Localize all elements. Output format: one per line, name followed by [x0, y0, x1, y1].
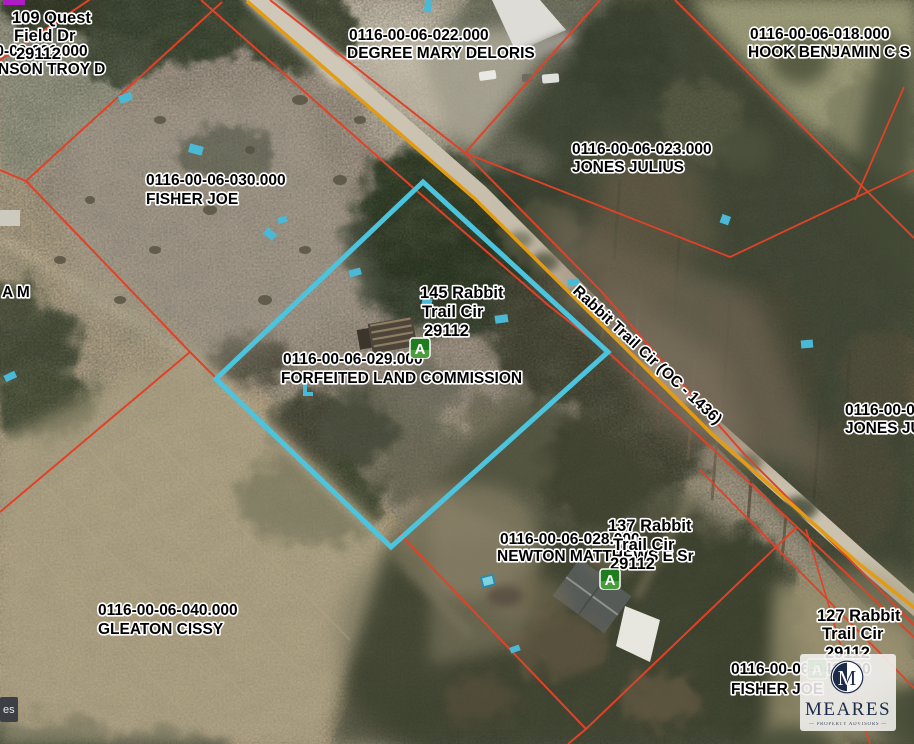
- svg-text:MEARES: MEARES: [805, 699, 891, 720]
- svg-text:A: A: [415, 341, 426, 358]
- svg-text:0116-00-06-018.000: 0116-00-06-018.000: [750, 26, 890, 43]
- svg-text:127 Rabbit: 127 Rabbit: [817, 607, 901, 625]
- svg-text:FISHER JOE: FISHER JOE: [146, 191, 238, 208]
- svg-text:137 Rabbit: 137 Rabbit: [608, 517, 692, 535]
- svg-text:Trail Cir: Trail Cir: [822, 625, 884, 643]
- svg-text:29112: 29112: [16, 45, 61, 63]
- svg-text:145 Rabbit: 145 Rabbit: [420, 284, 504, 302]
- svg-text:JONES JULIUS: JONES JULIUS: [572, 159, 684, 176]
- svg-text:HOOK BENJAMIN C S: HOOK BENJAMIN C S: [748, 44, 910, 61]
- svg-text:0116-00-06-024.000: 0116-00-06-024.000: [845, 402, 914, 419]
- svg-text:29112: 29112: [424, 322, 469, 340]
- svg-text:NSON TROY D: NSON TROY D: [0, 61, 105, 78]
- svg-text:DEGREE MARY DELORIS: DEGREE MARY DELORIS: [347, 45, 535, 62]
- svg-text:A: A: [605, 572, 616, 589]
- svg-text:GLEATON CISSY: GLEATON CISSY: [98, 621, 224, 638]
- svg-text:0116-00-06-040.000: 0116-00-06-040.000: [98, 602, 238, 619]
- svg-text:0116-00-06-023.000: 0116-00-06-023.000: [572, 141, 712, 158]
- svg-text:es: es: [3, 704, 15, 716]
- svg-text:Field Dr: Field Dr: [14, 27, 76, 45]
- svg-text:Trail Cir: Trail Cir: [613, 536, 675, 554]
- svg-text:0116-00-06-030.000: 0116-00-06-030.000: [146, 172, 286, 189]
- svg-text:Trail Cir: Trail Cir: [422, 303, 484, 321]
- svg-text:0116-00-06-029.000: 0116-00-06-029.000: [283, 351, 423, 368]
- svg-text:0116-00-06-022.000: 0116-00-06-022.000: [349, 27, 489, 44]
- svg-text:— PROPERTY ADVISORS —: — PROPERTY ADVISORS —: [808, 722, 887, 727]
- svg-text:A M: A M: [2, 284, 30, 301]
- svg-text:JONES JULIUS: JONES JULIUS: [845, 420, 914, 437]
- svg-text:FORFEITED LAND COMMISSION: FORFEITED LAND COMMISSION: [281, 370, 522, 387]
- svg-text:109 Quest: 109 Quest: [12, 9, 91, 27]
